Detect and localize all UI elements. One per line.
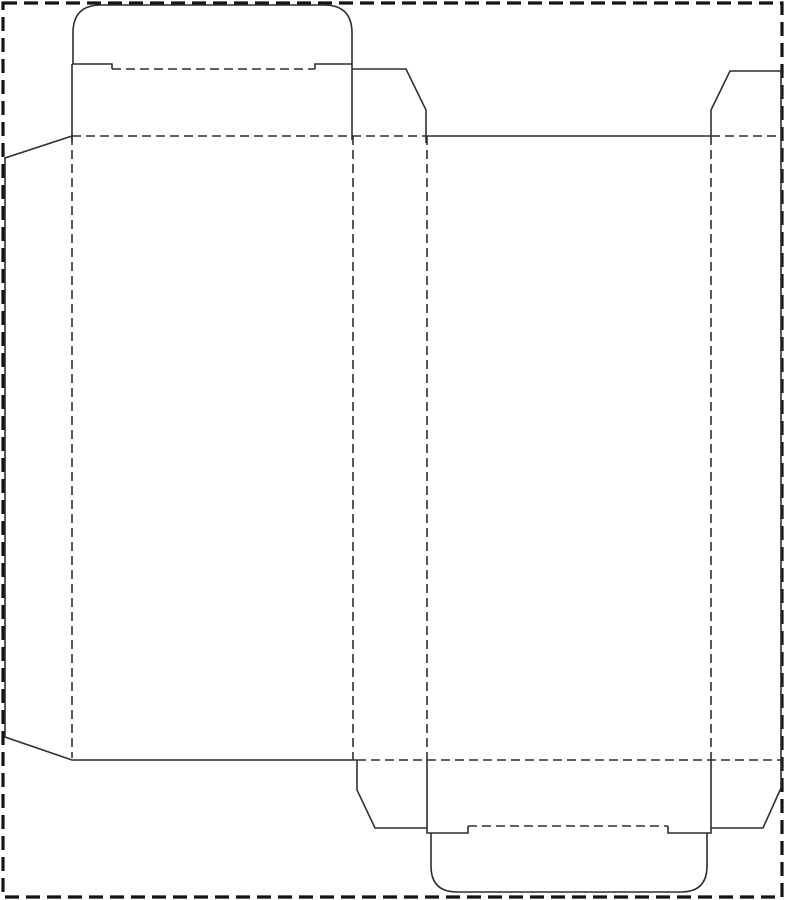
bottom-tuck-flap-outline	[431, 833, 707, 892]
dieline-drawing	[0, 0, 785, 900]
top-tuck-right-shoulder	[315, 64, 352, 69]
dieline-page	[0, 0, 785, 900]
top-tuck-flap-outline	[73, 5, 352, 64]
top-dust-flap-left-outline	[352, 69, 426, 143]
top-tuck-left-shoulder	[72, 64, 112, 69]
page-border	[3, 3, 782, 897]
bottom-dust-flap-left-outline	[357, 760, 427, 828]
bottom-panel-right-shoulder	[668, 760, 711, 833]
top-dust-flap-right-outline	[711, 71, 781, 110]
bottom-panel-left-shoulder	[427, 760, 468, 833]
glue-flap-outline	[5, 136, 72, 760]
bottom-dust-flap-right-outline	[711, 788, 781, 828]
